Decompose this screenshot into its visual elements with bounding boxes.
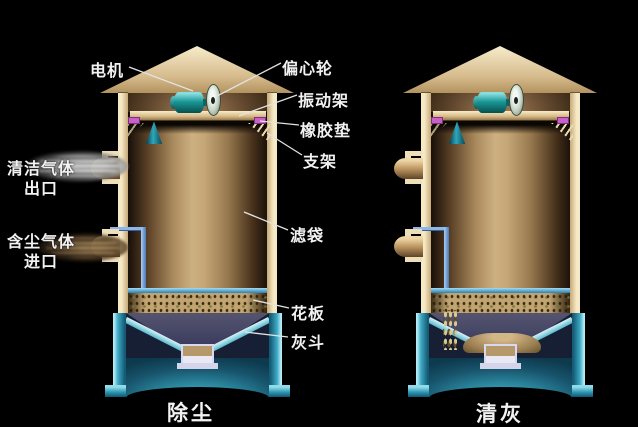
eccentric-wheel-hub — [514, 97, 518, 104]
label-rubber-pad: 橡胶垫 — [300, 117, 351, 141]
discharge-lip — [480, 363, 521, 369]
label-filter-bag: 滤袋 — [290, 222, 324, 246]
foot-left — [105, 385, 126, 397]
inlet-duct-vertical — [141, 227, 146, 290]
left-wall — [421, 92, 431, 313]
rubber-pad-left — [431, 117, 443, 124]
outlet-flange-arm — [405, 151, 422, 156]
label-line: 清洁气体 — [7, 161, 75, 178]
label-line: 出口 — [24, 181, 58, 198]
inlet-flange-arm — [405, 257, 422, 262]
left-wall — [118, 92, 128, 313]
filter-bag — [146, 122, 162, 290]
label-line: 进口 — [24, 254, 58, 271]
clean-gas-outlet-pipe — [394, 158, 423, 179]
roof — [403, 46, 597, 93]
label-line: 含尘气体 — [7, 234, 75, 251]
label-vibration-frame: 振动架 — [298, 87, 349, 111]
motor — [174, 92, 204, 113]
filter-bag-array — [146, 122, 264, 290]
filter-bag-array — [449, 122, 567, 290]
label-clean-gas-outlet: 清洁气体 出口 — [4, 160, 78, 200]
inlet-duct-vertical — [444, 227, 449, 290]
baghouse-diagram: 电机 偏心轮 振动架 橡胶垫 支架 滤袋 花板 灰斗 清洁气体 出口 含尘气体 … — [0, 0, 638, 427]
filter-bag — [449, 122, 465, 290]
discharge-lip — [177, 363, 218, 369]
bag-cap — [146, 122, 162, 144]
right-unit-ash-cleaning — [391, 0, 601, 427]
label-ash-hopper: 灰斗 — [291, 329, 325, 353]
outlet-flange-arm — [102, 179, 119, 184]
rubber-pad-left — [128, 117, 140, 124]
label-support-frame: 支架 — [303, 148, 337, 172]
motor — [477, 92, 507, 113]
label-dusty-gas-inlet: 含尘气体 进口 — [4, 233, 78, 273]
dusty-gas-inlet-pipe — [394, 236, 423, 257]
foot-right — [269, 385, 290, 397]
outlet-flange-arm — [405, 179, 422, 184]
bag-cap — [449, 122, 465, 144]
dust-stream — [443, 310, 457, 350]
caption-dust-removal: 除尘 — [156, 397, 226, 427]
roof — [100, 46, 294, 93]
foot-right — [572, 385, 593, 397]
eccentric-wheel-hub — [211, 97, 215, 104]
label-eccentric-wheel: 偏心轮 — [282, 55, 333, 79]
caption-ash-cleaning: 清灰 — [465, 398, 535, 427]
foot-left — [408, 385, 429, 397]
inlet-flange-arm — [102, 229, 119, 234]
rubber-pad-right — [254, 117, 266, 124]
label-tube-sheet: 花板 — [291, 300, 325, 324]
rubber-pad-right — [557, 117, 569, 124]
tube-sheet-dust-layer — [128, 293, 267, 313]
inlet-flange-arm — [405, 229, 422, 234]
label-motor: 电机 — [90, 57, 124, 81]
